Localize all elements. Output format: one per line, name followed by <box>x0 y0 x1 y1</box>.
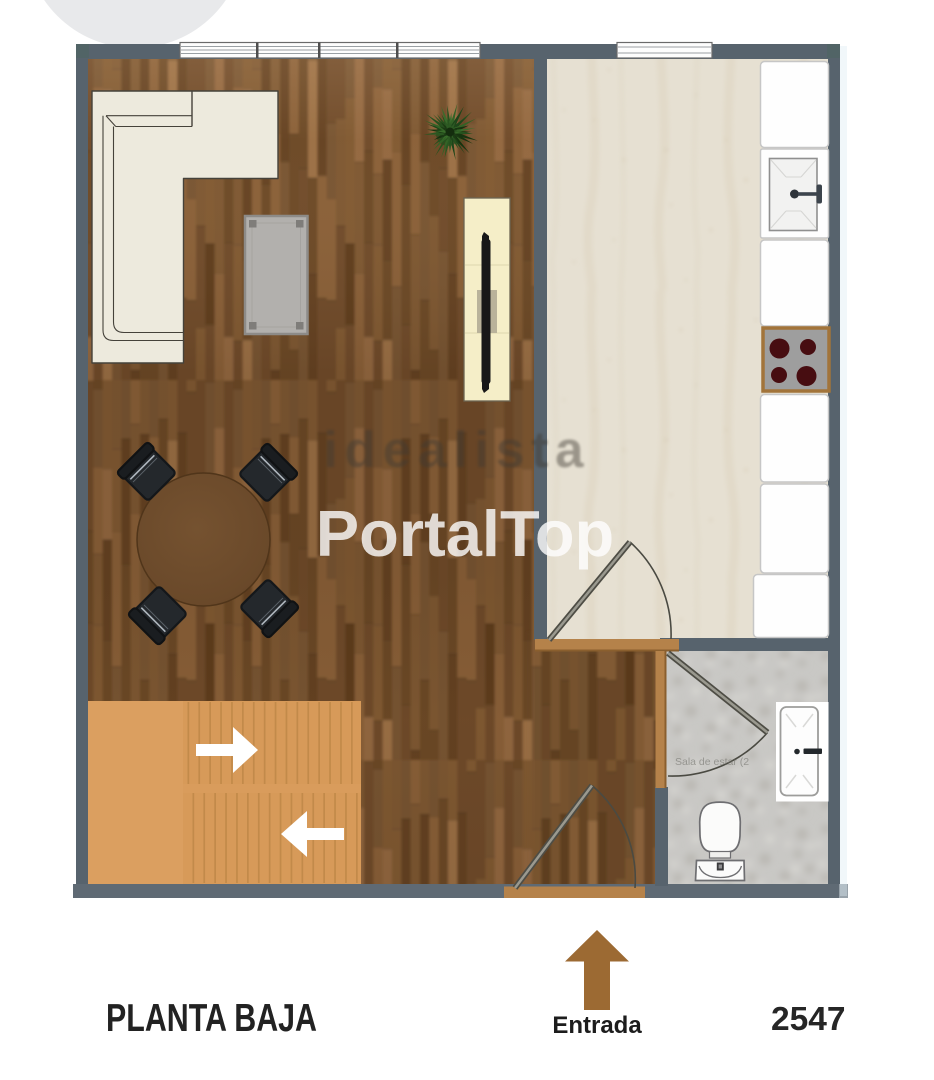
svg-text:Entrada: Entrada <box>552 1012 642 1039</box>
svg-text:idealista: idealista <box>323 421 590 478</box>
svg-text:PLANTA BAJA: PLANTA BAJA <box>106 997 317 1040</box>
svg-text:PortalTop: PortalTop <box>316 497 615 570</box>
svg-text:2547: 2547 <box>771 1001 846 1038</box>
svg-text:Sala de estar (2: Sala de estar (2 <box>675 756 749 768</box>
